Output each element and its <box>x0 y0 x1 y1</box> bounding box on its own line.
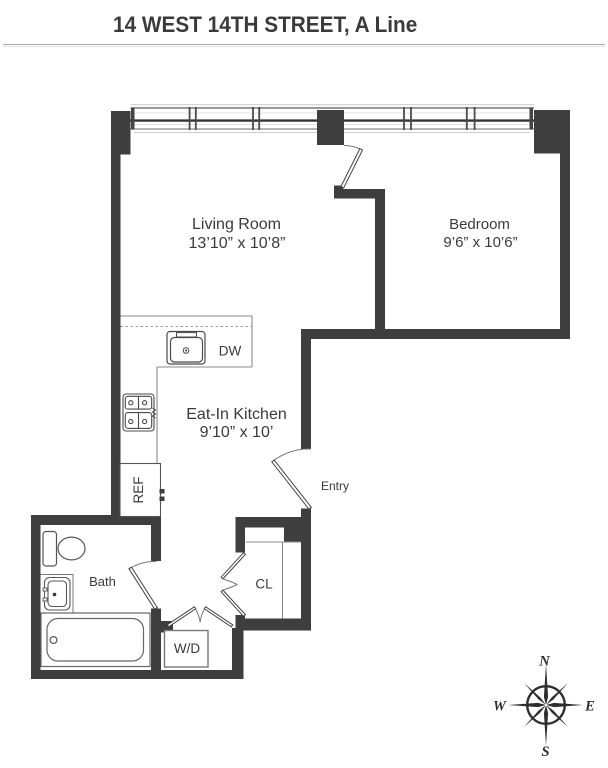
svg-text:Bedroom: Bedroom <box>449 216 510 233</box>
svg-text:9’6” x 10’6”: 9’6” x 10’6” <box>443 234 517 251</box>
svg-text:13’10” x 10’8”: 13’10” x 10’8” <box>189 235 286 252</box>
svg-text:9’10” x 10’: 9’10” x 10’ <box>200 424 274 441</box>
svg-text:E: E <box>584 699 595 715</box>
svg-text:Entry: Entry <box>321 479 349 493</box>
svg-text:Living Room: Living Room <box>192 216 281 233</box>
svg-text:DW: DW <box>219 344 242 359</box>
svg-text:S: S <box>541 744 549 760</box>
svg-text:N: N <box>538 654 550 670</box>
svg-text:CL: CL <box>255 577 273 592</box>
svg-text:REF: REF <box>131 477 146 504</box>
svg-text:Eat-In Kitchen: Eat-In Kitchen <box>186 406 287 423</box>
svg-text:W/D: W/D <box>174 641 200 656</box>
svg-text:Bath: Bath <box>89 574 116 589</box>
svg-text:W: W <box>493 699 507 715</box>
